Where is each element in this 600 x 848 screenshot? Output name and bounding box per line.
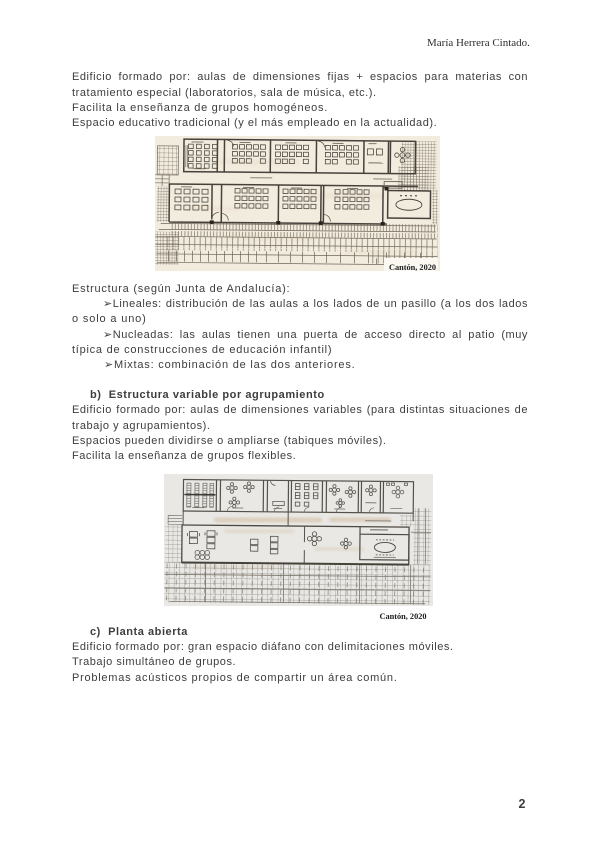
svg-text:Cantón, 2020: Cantón, 2020 [389,263,436,271]
